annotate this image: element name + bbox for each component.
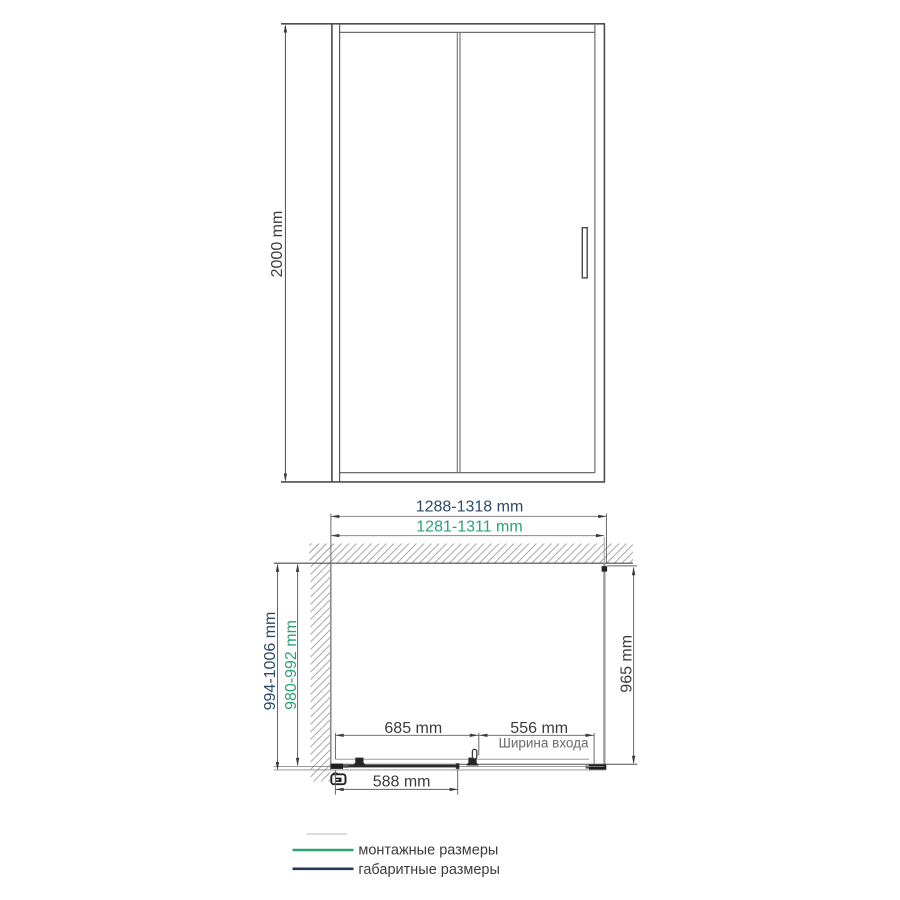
svg-text:994-1006 mm: 994-1006 mm bbox=[262, 612, 279, 711]
svg-text:монтажные размеры: монтажные размеры bbox=[358, 842, 498, 858]
svg-text:2000 mm: 2000 mm bbox=[269, 211, 286, 278]
svg-text:Ширина входа: Ширина входа bbox=[498, 736, 589, 751]
svg-text:965 mm: 965 mm bbox=[618, 635, 635, 693]
svg-text:1281-1311 mm: 1281-1311 mm bbox=[416, 519, 522, 536]
svg-text:980-992 mm: 980-992 mm bbox=[283, 620, 300, 710]
svg-text:1288-1318 mm: 1288-1318 mm bbox=[416, 499, 524, 516]
svg-text:габаритные размеры: габаритные размеры bbox=[358, 862, 500, 878]
svg-text:685 mm: 685 mm bbox=[384, 720, 442, 737]
svg-text:556 mm: 556 mm bbox=[510, 720, 568, 737]
svg-text:588 mm: 588 mm bbox=[373, 774, 431, 791]
